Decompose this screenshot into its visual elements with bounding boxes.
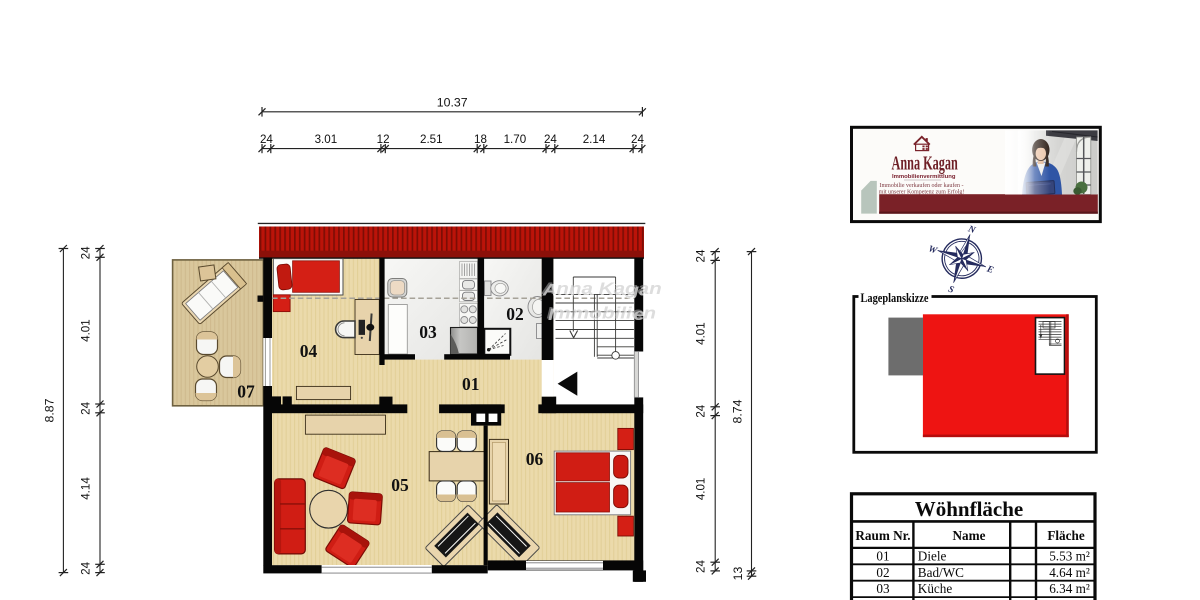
svg-text:18: 18	[474, 133, 487, 146]
svg-text:N: N	[966, 224, 978, 236]
svg-text:24: 24	[695, 249, 708, 262]
svg-text:E: E	[984, 264, 994, 276]
svg-text:Küche: Küche	[918, 581, 953, 596]
svg-text:S: S	[947, 285, 955, 296]
svg-text:04: 04	[300, 341, 318, 361]
svg-text:01: 01	[462, 374, 480, 394]
svg-text:W: W	[927, 244, 939, 256]
svg-text:Immobilien: Immobilien	[547, 305, 657, 323]
svg-text:24: 24	[79, 401, 92, 414]
svg-text:8.74: 8.74	[731, 399, 745, 423]
svg-text:03: 03	[419, 322, 437, 342]
svg-text:10.37: 10.37	[437, 96, 468, 110]
svg-text:Immobilienvermittlung: Immobilienvermittlung	[892, 174, 956, 180]
svg-text:Anna Kagan: Anna Kagan	[892, 152, 958, 174]
svg-text:06: 06	[526, 449, 544, 469]
svg-text:4.01: 4.01	[695, 478, 708, 501]
svg-text:03: 03	[876, 581, 890, 596]
svg-text:4.01: 4.01	[695, 322, 708, 345]
svg-text:4.64 m²: 4.64 m²	[1049, 565, 1090, 580]
svg-text:4.14: 4.14	[79, 477, 92, 500]
svg-text:24: 24	[695, 404, 708, 417]
svg-text:2.51: 2.51	[420, 133, 443, 146]
svg-text:02: 02	[506, 304, 524, 324]
svg-text:Raum Nr.: Raum Nr.	[855, 528, 910, 543]
svg-text:05: 05	[391, 475, 409, 495]
svg-text:24: 24	[631, 133, 644, 146]
svg-text:Anna Kagan: Anna Kagan	[540, 280, 662, 298]
svg-text:2.14: 2.14	[583, 133, 606, 146]
svg-text:24: 24	[695, 560, 708, 573]
svg-text:Wöhnfläche: Wöhnfläche	[915, 497, 1024, 521]
svg-text:6.34 m²: 6.34 m²	[1049, 581, 1090, 596]
svg-text:Lageplanskizze: Lageplanskizze	[861, 290, 929, 305]
svg-text:Bad/WC: Bad/WC	[918, 565, 964, 580]
svg-text:07: 07	[237, 382, 255, 402]
svg-text:24: 24	[544, 133, 557, 146]
svg-text:Fläche: Fläche	[1047, 528, 1085, 543]
svg-text:13: 13	[731, 567, 745, 581]
svg-text:24: 24	[79, 561, 92, 574]
svg-text:8.87: 8.87	[43, 398, 57, 422]
svg-text:01: 01	[876, 548, 889, 563]
svg-text:24: 24	[79, 246, 92, 259]
svg-text:02: 02	[876, 565, 889, 580]
svg-text:4.01: 4.01	[79, 319, 92, 342]
svg-text:12: 12	[377, 133, 390, 146]
svg-text:3.01: 3.01	[315, 133, 338, 146]
svg-text:Diele: Diele	[918, 548, 947, 563]
svg-text:5.53 m²: 5.53 m²	[1049, 548, 1090, 563]
svg-text:Name: Name	[953, 528, 986, 543]
svg-text:24: 24	[260, 133, 273, 146]
svg-text:1.70: 1.70	[504, 133, 527, 146]
